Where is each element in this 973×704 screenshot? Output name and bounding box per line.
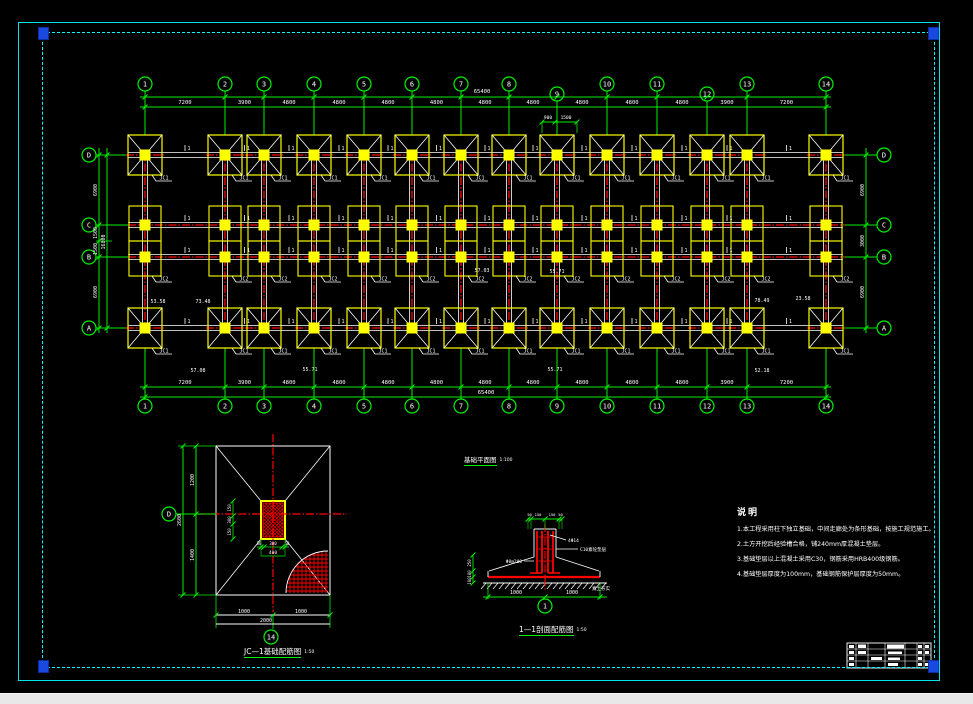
plan-title: 基础平面图1:100 xyxy=(464,454,512,464)
selection-grip-bottom-right[interactable] xyxy=(928,660,939,673)
general-notes: 说明 1.本工程采用柱下独立基础，中间走廊处为条形基础，按施工规范施工。 2.土… xyxy=(737,505,935,578)
cad-viewport: 11223344556677889910101111121213131414DD… xyxy=(0,0,973,704)
plan-title-text: 基础平面图 xyxy=(464,456,497,466)
section-title: 1—1剖面配筋图1:50 xyxy=(519,624,587,635)
note-line: 4.基础垫层厚度为100mm，基础钢筋保护层厚度为50mm。 xyxy=(737,569,935,578)
selection-grip-top-left[interactable] xyxy=(38,27,49,40)
notes-heading: 说明 xyxy=(737,505,935,518)
note-line: 3.基础垫层以上混凝土采用C30，钢筋采用HRB400级钢筋。 xyxy=(737,554,935,563)
detail-title-text: JC—1基础配筋图 xyxy=(244,647,301,658)
selection-grip-top-right[interactable] xyxy=(928,27,939,40)
selection-grip-bottom-left[interactable] xyxy=(38,660,49,673)
note-line: 1.本工程采用柱下独立基础，中间走廊处为条形基础，按施工规范施工。 xyxy=(737,524,935,533)
note-line: 2.土方开挖后经验槽合格，铺240mm厚混凝土垫层。 xyxy=(737,539,935,548)
section-title-text: 1—1剖面配筋图 xyxy=(519,625,574,636)
taskbar-strip[interactable] xyxy=(0,693,973,704)
section-title-scale: 1:50 xyxy=(577,628,587,633)
detail-title: JC—1基础配筋图1:50 xyxy=(244,646,314,657)
detail-title-scale: 1:50 xyxy=(304,650,314,655)
plan-title-scale: 1:100 xyxy=(500,458,513,463)
